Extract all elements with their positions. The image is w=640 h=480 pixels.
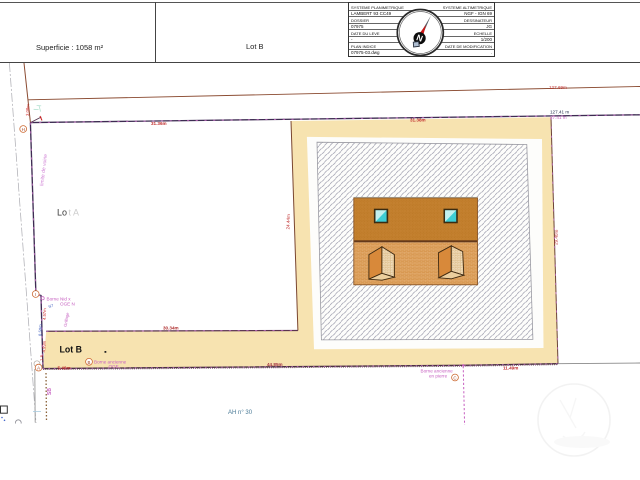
- svg-text:31.36m: 31.36m: [151, 121, 167, 126]
- svg-text:H: H: [22, 127, 25, 132]
- svg-text:24.44m: 24.44m: [286, 214, 292, 230]
- svg-text:SB: SB: [47, 388, 53, 395]
- svg-text:C: C: [453, 376, 456, 381]
- svg-text:29.40m: 29.40m: [554, 229, 560, 245]
- svg-text:Lo: Lo: [57, 208, 67, 218]
- svg-text:27.41 m: 27.41 m: [550, 115, 567, 120]
- svg-text:127.69m: 127.69m: [549, 85, 567, 90]
- svg-text:4.57m: 4.57m: [42, 308, 47, 320]
- svg-text:11.49m: 11.49m: [503, 366, 518, 371]
- svg-text:4.99m: 4.99m: [41, 340, 46, 352]
- svg-text:8.59m: 8.59m: [38, 324, 43, 336]
- svg-text:I: I: [35, 292, 36, 297]
- svg-text:AH n° 30: AH n° 30: [228, 410, 253, 416]
- svg-text:Grillage: Grillage: [63, 311, 71, 327]
- svg-text:OGE N: OGE N: [60, 302, 75, 307]
- svg-text:en pierre: en pierre: [429, 374, 448, 379]
- svg-text:30.34m: 30.34m: [163, 326, 179, 331]
- svg-text:limite de voirie: limite de voirie: [39, 154, 49, 187]
- svg-text:OGE: OGE: [109, 364, 119, 369]
- svg-text:A: A: [37, 366, 40, 371]
- svg-text:3.08m: 3.08m: [25, 104, 31, 116]
- svg-text:Lot B: Lot B: [60, 345, 82, 355]
- svg-text:5.46m: 5.46m: [58, 366, 71, 371]
- svg-text:31.38m: 31.38m: [410, 118, 426, 123]
- svg-text:5/7: 5/7: [48, 303, 54, 308]
- svg-text:B: B: [88, 360, 91, 365]
- svg-text:44.85m: 44.85m: [267, 362, 283, 367]
- svg-text:1.8: 1.8: [39, 354, 44, 361]
- svg-text:t A: t A: [69, 208, 80, 218]
- svg-text:127.41 m: 127.41 m: [550, 110, 569, 115]
